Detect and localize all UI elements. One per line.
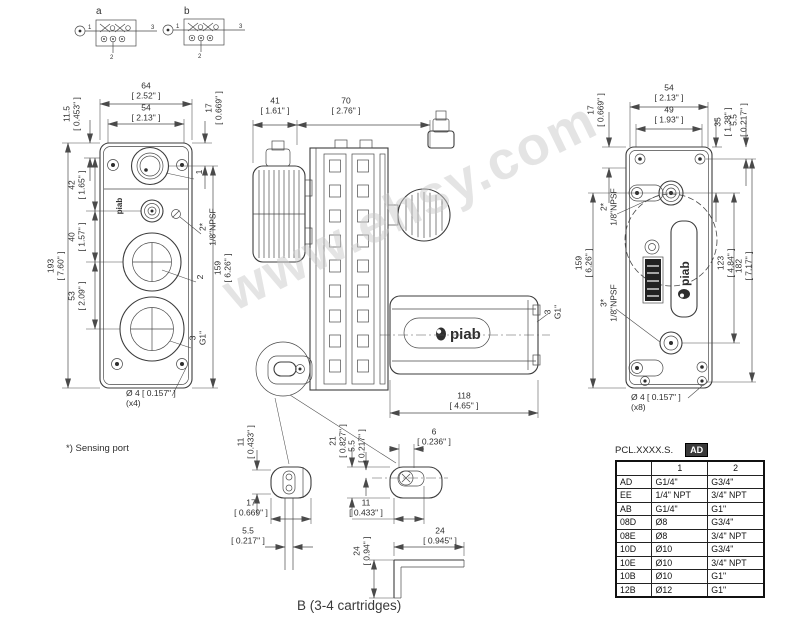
piab-logo-cylinder: piab: [450, 326, 481, 343]
table-row: 08DØ8G3/4": [616, 516, 764, 530]
table-row: 10EØ103/4" NPT: [616, 556, 764, 570]
config-table-grid: 1 2 ADG1/4"G3/4"EE1/4" NPT3/4" NPTABG1/4…: [615, 460, 765, 598]
front-view: piab: [100, 143, 192, 388]
table-cell: 3/4" NPT: [708, 556, 764, 570]
dim-back-height-159: 159[ 6.26" ]: [574, 248, 593, 277]
table-row: ABG1/4"G1": [616, 502, 764, 516]
table-cell: 08E: [616, 529, 652, 543]
table-cell: AD: [616, 475, 652, 489]
table-title: PCL.XXXX.S.: [615, 445, 673, 456]
table-header-cell: [616, 461, 652, 475]
table-badge: AD: [685, 443, 708, 457]
table-cell: G1/4": [652, 475, 708, 489]
table-cell: 08D: [616, 516, 652, 530]
hole-callout-back: Ø 4 [ 0.157" ](x8): [631, 392, 681, 412]
table-cell: Ø10: [652, 556, 708, 570]
table-header-row: 1 2: [616, 461, 764, 475]
dim-side-width-41: 41[ 1.61" ]: [260, 96, 289, 115]
dim-bracket-21: 21[ 0.827" ]: [328, 424, 347, 458]
dim-bracket-6: 6[ 0.236" ]: [417, 427, 451, 446]
table-cell: Ø8: [652, 529, 708, 543]
config-table: PCL.XXXX.S. AD 1 2 ADG1/4"G3/4"EE1/4" NP…: [615, 443, 765, 598]
dim-bracket-11a: 11[ 0.433" ]: [236, 425, 255, 459]
table-cell: G1": [708, 583, 764, 597]
back-view: piab: [625, 147, 717, 388]
dim-back-height-5-5: 5.5[ 0.217" ]: [729, 103, 748, 137]
table-row: ADG1/4"G3/4": [616, 475, 764, 489]
table-header-cell: 2: [708, 461, 764, 475]
schem-port-2: 2: [110, 55, 114, 61]
figure-caption: B (3-4 cartridges): [297, 598, 401, 613]
config-table-body: ADG1/4"G3/4"EE1/4" NPT3/4" NPTABG1/4"G1"…: [616, 475, 764, 597]
table-cell: G1/4": [652, 502, 708, 516]
table-cell: EE: [616, 489, 652, 503]
side-view-dimensions: [253, 120, 549, 464]
table-cell: G3/4": [708, 543, 764, 557]
dim-front-height-11-5: 11.5[ 0.453" ]: [62, 97, 81, 131]
table-cell: 3/4" NPT: [708, 529, 764, 543]
dim-back-height-17: 17[ 0.669" ]: [586, 93, 605, 127]
table-cell: Ø10: [652, 543, 708, 557]
dim-front-width-64: 64[ 2.52" ]: [131, 81, 160, 100]
dim-front-height-159: 159[ 6.26" ]: [213, 253, 232, 282]
dim-back-width-54: 54[ 2.13" ]: [654, 83, 683, 102]
dim-bracket-5-5b: 5.5[ 0.217" ]: [347, 429, 366, 463]
schem-port-1: 1: [88, 25, 92, 31]
port-label-2-sensing-back: 2*1/8"NPSF: [599, 188, 618, 226]
dim-bracket-24v: 24[ 0.94" ]: [352, 536, 371, 565]
technical-drawing-page: { "watermark": "www.ehsy.com", "schemati…: [0, 0, 790, 632]
dim-back-width-49: 49[ 1.93" ]: [654, 105, 683, 124]
table-row: EE1/4" NPT3/4" NPT: [616, 489, 764, 503]
dim-bracket-11b: 11[ 0.433" ]: [349, 498, 383, 517]
table-cell: AB: [616, 502, 652, 516]
table-cell: 10B: [616, 570, 652, 584]
port-label-3-g1-side: 3G1": [543, 305, 562, 319]
table-row: 12BØ12G1": [616, 583, 764, 597]
dim-front-height-53: 53[ 2.09" ]: [67, 281, 86, 310]
schematic-b-label: b: [184, 6, 190, 17]
dim-front-height-40: 40[ 1.57" ]: [67, 222, 86, 251]
dim-side-width-70: 70[ 2.76" ]: [331, 96, 360, 115]
port-label-3-sensing-back: 3*1/8"NPSF: [599, 284, 618, 322]
dim-bracket-24h: 24[ 0.945" ]: [423, 526, 457, 545]
pneumatic-schematic-a: 1 3 2: [75, 20, 157, 61]
table-row: 08EØ83/4" NPT: [616, 529, 764, 543]
table-cell: Ø10: [652, 570, 708, 584]
piab-logo-back: piab: [678, 261, 692, 286]
dim-front-width-54: 54[ 2.13" ]: [131, 103, 160, 122]
dim-front-height-193: 193[ 7.60" ]: [46, 251, 65, 280]
schematic-a-label: a: [96, 6, 102, 17]
dim-back-height-182: 182[ 7.17" ]: [734, 251, 753, 280]
sensing-port-note: *) Sensing port: [66, 443, 129, 454]
port-label-2-sensing: 2*1/8"NPSF: [198, 208, 217, 246]
table-cell: 1/4" NPT: [652, 489, 708, 503]
table-row: 10BØ10G1": [616, 570, 764, 584]
schem-port-3: 3: [151, 25, 155, 31]
dim-bracket-5-5a: 5.5[ 0.217" ]: [231, 526, 265, 545]
table-cell: Ø8: [652, 516, 708, 530]
table-cell: 10D: [616, 543, 652, 557]
table-cell: G1": [708, 570, 764, 584]
side-view: piab: [253, 111, 550, 396]
table-cell: G3/4": [708, 516, 764, 530]
table-cell: 12B: [616, 583, 652, 597]
table-cell: 10E: [616, 556, 652, 570]
port-label-2: 2: [196, 275, 206, 280]
table-header-cell: 1: [652, 461, 708, 475]
table-cell: G1": [708, 502, 764, 516]
table-cell: 3/4" NPT: [708, 489, 764, 503]
bracket-details: [252, 444, 464, 598]
hole-callout-front: Ø 4 [ 0.157" ](x4): [126, 388, 176, 408]
dim-bracket-17: 17[ 0.669" ]: [234, 498, 268, 517]
table-cell: Ø12: [652, 583, 708, 597]
table-cell: G3/4": [708, 475, 764, 489]
table-row: 10DØ10G3/4": [616, 543, 764, 557]
dim-front-height-17: 17[ 0.669" ]: [204, 91, 223, 125]
dim-side-width-118: 118[ 4.65" ]: [449, 391, 478, 410]
port-label-1: 1: [195, 170, 205, 175]
port-label-3-g1: 3G1": [188, 331, 207, 345]
pneumatic-schematic-b: [163, 19, 245, 60]
piab-logo-front: piab: [115, 198, 124, 215]
dim-front-height-42: 42[ 1.65" ]: [67, 170, 86, 199]
